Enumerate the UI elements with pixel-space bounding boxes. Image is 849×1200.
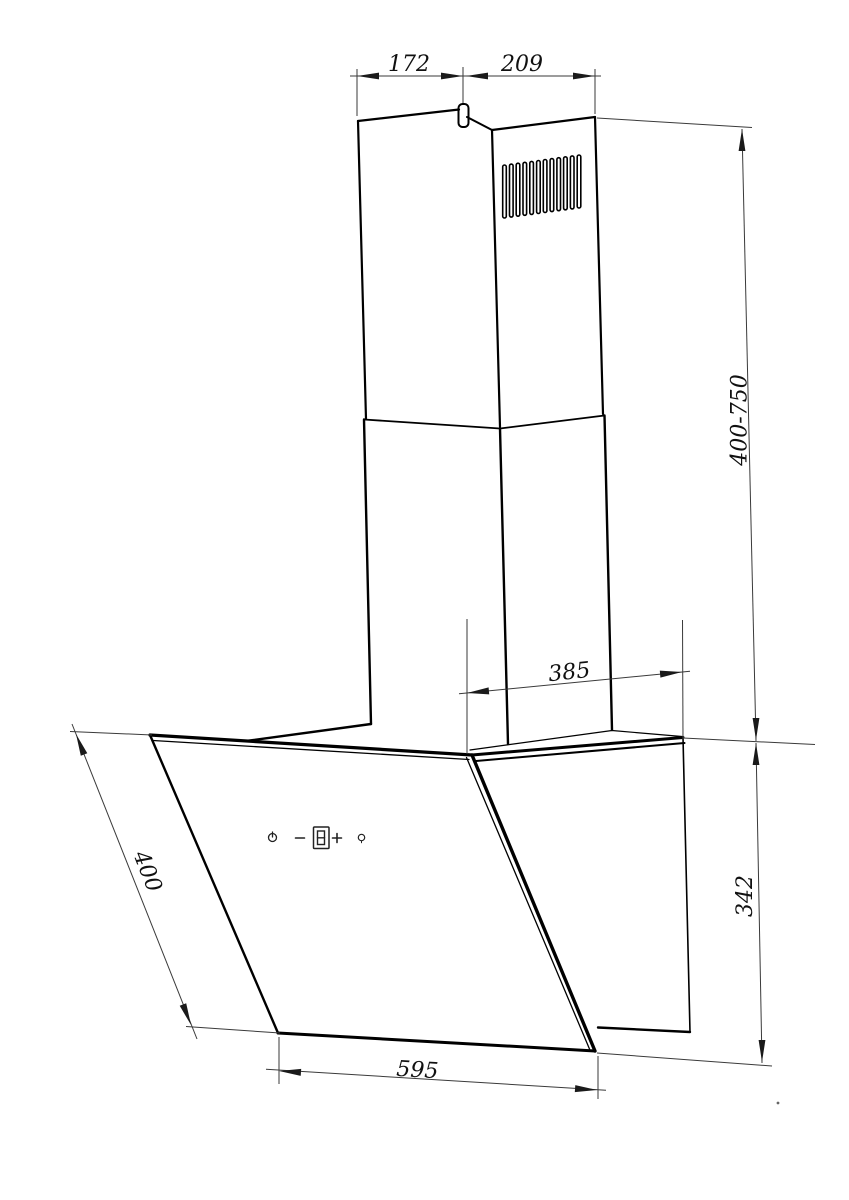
vent-slot — [543, 160, 547, 213]
arrowhead — [180, 1003, 191, 1025]
range-hood-dimension-drawing: 172 209 400-750 342 385 595 — [0, 0, 849, 1200]
arrowhead — [573, 73, 595, 80]
extension-line — [683, 738, 815, 745]
print-speck — [777, 1102, 780, 1105]
arrowhead — [575, 1085, 597, 1092]
vent-slot — [570, 156, 574, 209]
arrowhead — [753, 743, 760, 765]
dimension-body-side-height: 342 — [597, 738, 815, 1066]
dimension-label: 342 — [733, 875, 758, 917]
vent-slot — [516, 163, 520, 216]
glass-bottom-edge — [278, 1033, 595, 1051]
arrowhead — [753, 718, 760, 740]
dimension-chimney-height-range: 400-750 — [597, 118, 759, 741]
body-right-back-edge — [683, 738, 690, 1033]
chimney-upper-left-edge — [358, 121, 366, 419]
vent-slot — [577, 155, 581, 208]
hood-body — [246, 724, 690, 1032]
chimney-top-rim-left — [358, 110, 459, 122]
vent-slot — [523, 162, 527, 215]
body-bottom-right-edge — [598, 1028, 690, 1033]
chimney-top-rim-right — [492, 117, 595, 130]
vent-slot — [557, 158, 561, 211]
speed-display — [314, 827, 330, 849]
dimension-label: 400-750 — [728, 374, 753, 466]
light-icon — [358, 834, 364, 843]
glass-left-edge — [150, 735, 278, 1033]
dimension-glass-panel-length: 400 — [70, 724, 280, 1039]
vent-slot — [530, 161, 534, 214]
chimney-upper-right-edge — [595, 117, 603, 414]
technical-drawing-sheet: 172 209 400-750 342 385 595 — [0, 0, 849, 1200]
glass-top-edge-inner — [153, 741, 469, 760]
extension-line — [70, 732, 152, 736]
glass-panel — [150, 735, 595, 1051]
glass-right-edge-inner — [467, 758, 590, 1050]
telescopic-seam-right — [500, 416, 605, 429]
plus-icon — [333, 834, 342, 843]
chimney-lower-left-edge — [364, 420, 371, 725]
body-top-back-edge-left — [246, 724, 371, 741]
vent-slot — [550, 159, 554, 212]
body-top-back-edge-right — [612, 731, 682, 737]
chimney-upper-front-corner-edge — [492, 130, 500, 427]
chimney-upper-section — [358, 104, 603, 427]
vent-slot — [510, 164, 514, 217]
chimney-lower-front-corner-edge — [500, 429, 508, 745]
arrowhead — [660, 671, 682, 678]
vent-grille — [503, 155, 581, 218]
vent-slot — [503, 165, 507, 218]
vent-slot — [537, 161, 541, 214]
extension-line — [597, 1053, 772, 1066]
arrowhead — [357, 73, 379, 80]
extension-line — [683, 620, 684, 739]
dimension-label: 209 — [500, 52, 543, 77]
extension-line — [186, 1027, 280, 1034]
arrowhead — [441, 73, 463, 80]
touch-control-panel — [269, 827, 365, 849]
chimney-lower-section — [364, 416, 612, 745]
telescopic-seam-left — [364, 420, 500, 429]
arrowhead — [466, 73, 488, 80]
extension-line — [597, 118, 752, 128]
dimension-chimney-top-left-width: 172 — [350, 52, 601, 116]
glass-right-edge — [472, 755, 595, 1051]
chimney-base-rim — [470, 731, 612, 751]
power-icon — [269, 832, 277, 842]
arrowhead — [759, 1040, 766, 1062]
glass-top-edge — [150, 735, 472, 755]
dimension-chimney-top-right-width: 209 — [466, 52, 595, 114]
dimension-label: 385 — [547, 658, 591, 687]
arrowhead — [467, 687, 489, 694]
arrowhead — [76, 734, 87, 756]
dimension-line — [72, 724, 197, 1039]
dimension-label: 400 — [127, 847, 166, 896]
dimension-label: 595 — [396, 1057, 439, 1084]
arrowhead — [739, 129, 746, 151]
chimney-top-corner-fold — [467, 117, 492, 130]
dimension-label: 172 — [388, 52, 430, 77]
chimney-top-seam-tab — [459, 104, 469, 127]
chimney-lower-right-edge — [605, 416, 613, 731]
vent-slot — [564, 157, 568, 210]
dimension-bottom-width: 595 — [266, 1037, 606, 1099]
